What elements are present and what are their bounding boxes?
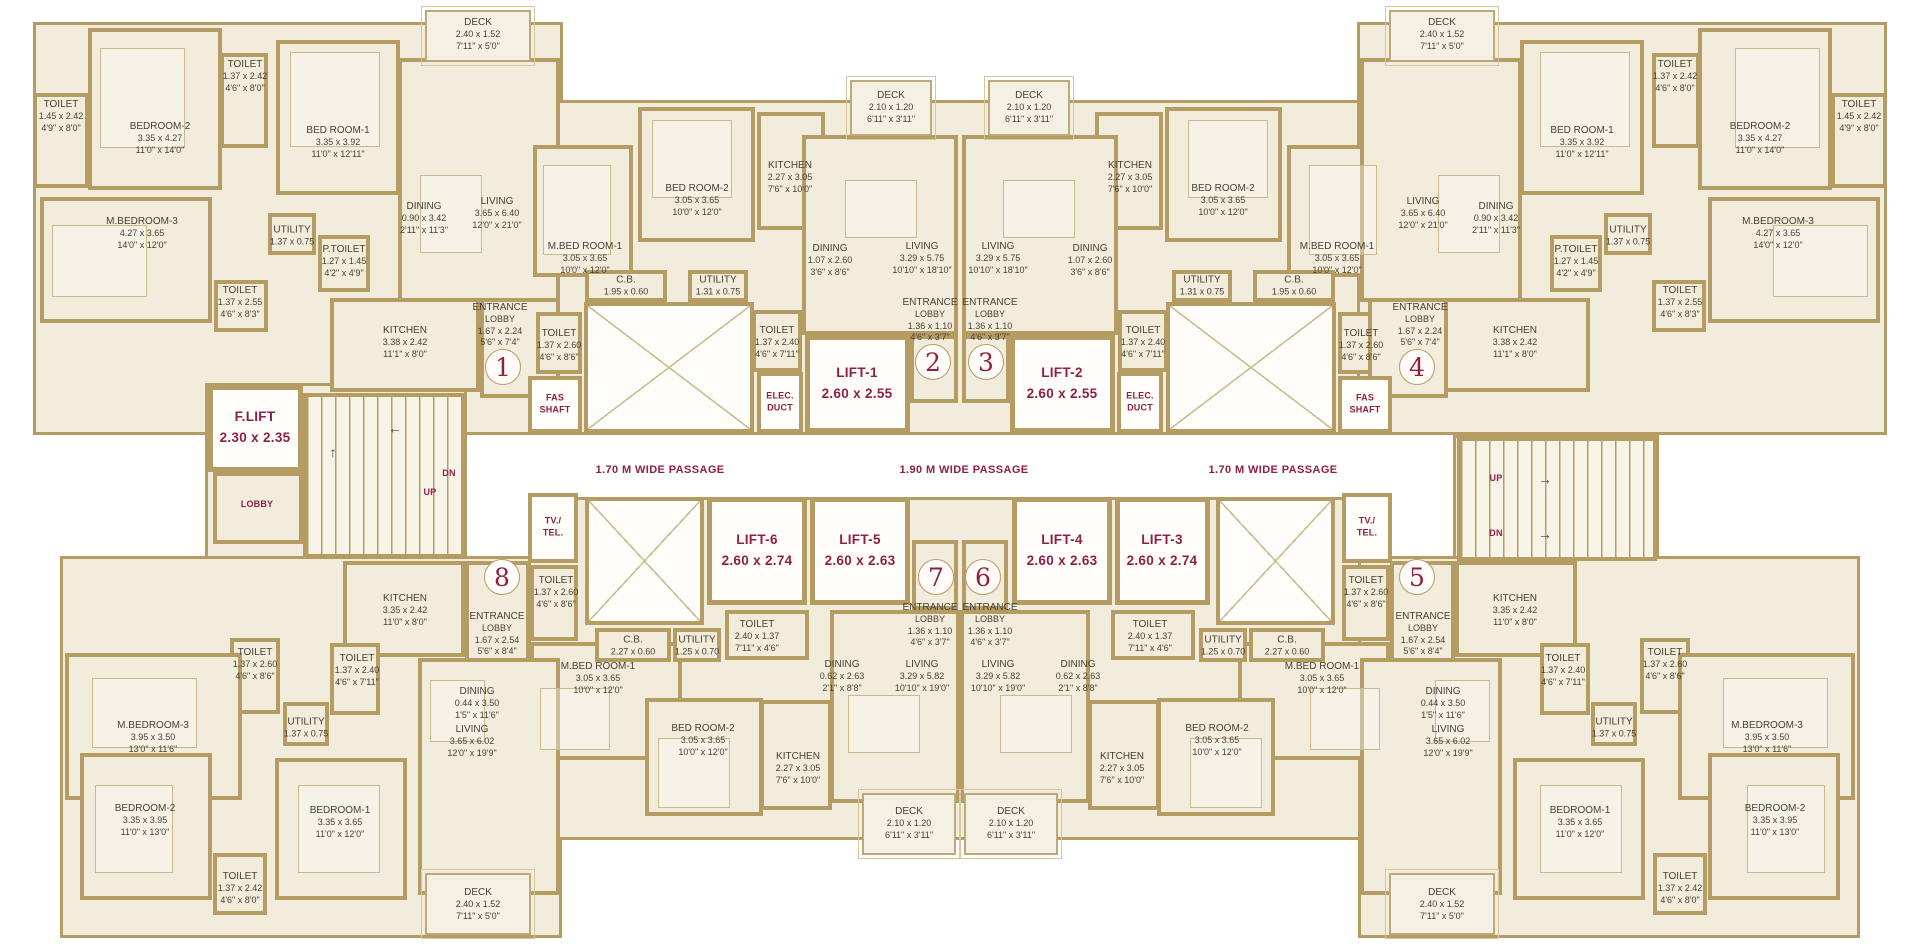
- u4-entrance-lobby-label-line-0: ENTRANCE: [1392, 301, 1447, 314]
- u1-toilet-bottom-label-line-0: TOILET: [218, 284, 263, 297]
- u2-deck-label-line-0: DECK: [867, 89, 915, 102]
- u4-toilet-mid-label-line-2: 4'6" x 8'0": [1653, 83, 1698, 95]
- u8-m-bedroom-3-label-line-1: 3.95 x 3.50: [117, 732, 189, 744]
- u1-living-label-line-1: 3.65 x 6.40: [472, 208, 521, 220]
- u7-dining-label-line-1: 0.62 x 2.63: [820, 671, 865, 683]
- u7-cb-label: C.B.2.27 x 0.60: [611, 634, 656, 659]
- fas-shaft-left-label-line-0: FAS: [540, 392, 571, 404]
- tv-tel-left-label-line-1: TEL.: [543, 527, 563, 539]
- u6-deck-label-line-1: 2.10 x 1.20: [987, 818, 1035, 830]
- u5-toilet-c-label: TOILET1.37 x 2.424'6" x 8'0": [1658, 870, 1703, 906]
- staircase-left: [303, 393, 465, 558]
- u3-living-label-line-1: 3.29 x 5.75: [968, 253, 1027, 265]
- u4-dining-label-line-2: 2'11" x 11'3": [1472, 225, 1520, 237]
- u7-kitchen-label-line-1: 2.27 x 3.05: [776, 763, 821, 775]
- elec-duct-left-label-line-0: ELEC.: [766, 390, 794, 402]
- u5-bedroom-1-label: BEDROOM-13.35 x 3.6511'0" x 12'0": [1550, 804, 1611, 840]
- lift-4-label-line-1: 2.60 x 2.63: [1027, 551, 1098, 572]
- u3-bed-room-2-label: BED ROOM-23.05 x 3.6510'0" x 12'0": [1191, 182, 1254, 218]
- u4-bed-room-1-label-line-1: 3.35 x 3.92: [1550, 137, 1613, 149]
- u5-toilet-c-label-line-2: 4'6" x 8'0": [1658, 895, 1703, 907]
- u7-deck-label-line-1: 2.10 x 1.20: [885, 818, 933, 830]
- u8-bedroom-1-label: BEDROOM-13.35 x 3.6511'0" x 12'0": [310, 804, 371, 840]
- u4-utility-label: UTILITY1.37 x 0.75: [1606, 224, 1651, 249]
- tv-tel-left-label-line-0: TV./: [543, 515, 563, 527]
- lift-2-label-line-1: 2.60 x 2.55: [1027, 384, 1098, 405]
- u2-deck-label: DECK2.10 x 1.206'11" x 3'11": [867, 89, 915, 125]
- u8-toilet-c-label: TOILET1.37 x 2.424'6" x 8'0": [218, 870, 263, 906]
- u7-bed-room-2-label: BED ROOM-23.05 x 3.6510'0" x 12'0": [671, 722, 734, 758]
- u6-toilet-mid-label-line-1: 2.40 x 1.37: [1128, 631, 1173, 643]
- u4-kitchen-label-line-2: 11'1" x 8'0": [1493, 349, 1538, 361]
- u4-p-toilet-label-line-0: P.TOILET: [1554, 243, 1599, 256]
- lift-6-label: LIFT-62.60 x 2.74: [722, 530, 793, 572]
- u6-cb-label-line-0: C.B.: [1265, 634, 1310, 647]
- u2-bed-room-2-label-line-0: BED ROOM-2: [665, 182, 728, 195]
- u5-bedroom-1-label-line-0: BEDROOM-1: [1550, 804, 1611, 817]
- fas-shaft-left-label: FASSHAFT: [540, 392, 571, 415]
- u3-deck-label-line-2: 6'11" x 3'11": [1005, 114, 1053, 126]
- u2-bed-room-2-label: BED ROOM-23.05 x 3.6510'0" x 12'0": [665, 182, 728, 218]
- u3-living-label: LIVING3.29 x 5.7510'10" x 18'10": [968, 240, 1027, 276]
- u4-dining-label-line-0: DINING: [1472, 200, 1520, 213]
- u6-toilet-mid-label: TOILET2.40 x 1.377'11" x 4'6": [1128, 618, 1173, 654]
- u5-bedroom-2-label-line-2: 11'0" x 13'0": [1745, 827, 1806, 839]
- u7-toilet-left-label: TOILET1.37 x 2.604'6" x 8'6": [534, 574, 579, 610]
- u4-m-bedroom-3-label-line-1: 4.27 x 3.65: [1742, 228, 1814, 240]
- u1-dining-label: DINING0.90 x 3.422'11" x 11'3": [400, 200, 448, 236]
- stair-left-arrow-dn: ←: [388, 419, 402, 437]
- u8-toilet-c-label-line-0: TOILET: [218, 870, 263, 883]
- u8-kitchen-label-line-0: KITCHEN: [383, 592, 428, 605]
- u5-bedroom-1-label-line-1: 3.35 x 3.65: [1550, 817, 1611, 829]
- dining-table: [1000, 695, 1072, 753]
- unit-number-4: 4: [1399, 349, 1435, 385]
- u2-toilet-right-label-line-0: TOILET: [755, 324, 800, 337]
- u4-toilet-right-label-line-2: 4'9" x 8'0": [1837, 123, 1882, 135]
- u1-bed-room-1-label-line-1: 3.35 x 3.92: [306, 137, 369, 149]
- u7-dining-label-line-2: 2'1" x 8'8": [820, 683, 865, 695]
- u2-cb-label-line-0: C.B.: [604, 274, 649, 287]
- u4-entrance-lobby-label-line-3: 5'6" x 7'4": [1392, 337, 1447, 349]
- u6-m-bed-room-1-label-line-1: 3.05 x 3.65: [1285, 673, 1359, 685]
- stair-right-up-label: UP: [1490, 473, 1503, 485]
- u2-entrance-lobby-label-line-1: LOBBY: [902, 309, 957, 321]
- u5-entrance-lobby-label-line-3: 5'6" x 8'4": [1395, 646, 1450, 658]
- u2-toilet-left-label-line-0: TOILET: [537, 327, 582, 340]
- staircase-right: [1457, 437, 1657, 561]
- u6-cb-label: C.B.2.27 x 0.60: [1265, 634, 1310, 659]
- u3-deck-label-line-1: 2.10 x 1.20: [1005, 102, 1053, 114]
- u1-bed-room-1-label: BED ROOM-13.35 x 3.9211'0" x 12'11": [306, 124, 369, 160]
- lift-5-label-line-1: 2.60 x 2.63: [825, 551, 896, 572]
- u7-m-bed-room-1-label: M.BED ROOM-13.05 x 3.6510'0" x 12'0": [561, 660, 635, 696]
- bed: [540, 688, 610, 750]
- u6-deck-label-line-0: DECK: [987, 805, 1035, 818]
- lift-6-label-line-1: 2.60 x 2.74: [722, 551, 793, 572]
- u1-toilet-left-label: TOILET1.45 x 2.424'9" x 8'0": [39, 98, 84, 134]
- u3-bed-room-2-label-line-0: BED ROOM-2: [1191, 182, 1254, 195]
- u6-entrance-lobby-label-line-3: 4'6" x 3'7": [962, 637, 1017, 649]
- u4-bed-room-1-label-line-2: 11'0" x 12'11": [1550, 149, 1613, 161]
- bed: [1310, 688, 1380, 750]
- u3-m-bed-room-1-label-line-1: 3.05 x 3.65: [1300, 253, 1374, 265]
- fire-lift-label: F.LIFT2.30 x 2.35: [220, 407, 291, 449]
- unit-number-3: 3: [968, 344, 1004, 380]
- u6-utility-label: UTILITY1.25 x 0.70: [1201, 634, 1246, 659]
- u2-bed-room-2-label-line-2: 10'0" x 12'0": [665, 207, 728, 219]
- u3-dining-label-line-0: DINING: [1068, 242, 1113, 255]
- u4-toilet-mid-label: TOILET1.37 x 2.424'6" x 8'0": [1653, 58, 1698, 94]
- passage-left-label: 1.70 M WIDE PASSAGE: [595, 463, 724, 477]
- u8-entrance-lobby-label-line-1: LOBBY: [469, 623, 524, 635]
- u4-bedroom-2-label: BEDROOM-23.35 x 4.2711'0" x 14'0": [1730, 120, 1791, 156]
- floor-plan: BEDROOM-23.35 x 4.2711'0" x 14'0"TOILET1…: [0, 0, 1920, 947]
- u8-utility-label-line-1: 1.37 x 0.75: [284, 729, 329, 741]
- u2-deck-label-line-2: 6'11" x 3'11": [867, 114, 915, 126]
- u1-living-label: LIVING3.65 x 6.4012'0" x 21'0": [472, 195, 521, 231]
- u7-bed-room-2-label-line-2: 10'0" x 12'0": [671, 747, 734, 759]
- u4-bedroom-2-label-line-0: BEDROOM-2: [1730, 120, 1791, 133]
- u5-toilet-b-label-line-2: 4'6" x 7'11": [1541, 677, 1586, 689]
- stair-right-up-label-line-0: UP: [1490, 473, 1503, 485]
- stair-right-arrow-dn-line-0: →: [1538, 525, 1552, 543]
- u4-toilet-mid-label-line-0: TOILET: [1653, 58, 1698, 71]
- u4-p-toilet-label-line-1: 1.27 x 1.45: [1554, 256, 1599, 268]
- u1-p-toilet-label-line-2: 4'2" x 4'9": [322, 268, 367, 280]
- u7-cb-label-line-0: C.B.: [611, 634, 656, 647]
- stair-right-dn-label: DN: [1489, 528, 1502, 540]
- u6-dining-label-line-1: 0.62 x 2.63: [1056, 671, 1101, 683]
- u1-toilet-left-label-line-2: 4'9" x 8'0": [39, 123, 84, 135]
- u3-kitchen-label-line-1: 2.27 x 3.05: [1108, 172, 1153, 184]
- u7-utility-label: UTILITY1.25 x 0.70: [675, 634, 720, 659]
- u3-kitchen-label-line-0: KITCHEN: [1108, 159, 1153, 172]
- lift-3-label-line-0: LIFT-3: [1127, 530, 1198, 551]
- u3-bed-room-2-label-line-1: 3.05 x 3.65: [1191, 195, 1254, 207]
- u5-bedroom-2-label-line-0: BEDROOM-2: [1745, 802, 1806, 815]
- stair-right-arrow-dn: →: [1538, 525, 1552, 543]
- u8-toilet-c-label-line-1: 1.37 x 2.42: [218, 883, 263, 895]
- u4-kitchen-label-line-1: 3.38 x 2.42: [1493, 337, 1538, 349]
- u8-bedroom-1-label-line-1: 3.35 x 3.65: [310, 817, 371, 829]
- tv-tel-right-label-line-0: TV./: [1357, 515, 1377, 527]
- u1-m-bedroom-3-label-line-0: M.BEDROOM-3: [106, 215, 178, 228]
- u7-utility-label-line-1: 1.25 x 0.70: [675, 647, 720, 659]
- u1-m-bedroom-3-label: M.BEDROOM-34.27 x 3.6514'0" x 12'0": [106, 215, 178, 251]
- lift-3-label: LIFT-32.60 x 2.74: [1127, 530, 1198, 572]
- u8-dining-label-line-1: 0.44 x 3.50: [455, 698, 500, 710]
- u7-deck-label-line-2: 6'11" x 3'11": [885, 830, 933, 842]
- u7-m-bed-room-1-label-line-0: M.BED ROOM-1: [561, 660, 635, 673]
- u1-bedroom-2-label: BEDROOM-23.35 x 4.2711'0" x 14'0": [130, 120, 191, 156]
- u1-entrance-lobby-label-line-0: ENTRANCE: [472, 301, 527, 314]
- stair-right-dn-label-line-0: DN: [1489, 528, 1502, 540]
- u7-living-label-line-0: LIVING: [895, 658, 949, 671]
- u6-bed-room-2-label-line-2: 10'0" x 12'0": [1185, 747, 1248, 759]
- u2-kitchen-label-line-1: 2.27 x 3.05: [768, 172, 813, 184]
- u8-bedroom-2-label-line-1: 3.35 x 3.95: [115, 815, 176, 827]
- u1-living-label-line-2: 12'0" x 21'0": [472, 220, 521, 232]
- u8-dining-label-line-2: 1'5" x 11'6": [455, 710, 500, 722]
- u4-dining-label-line-1: 0.90 x 3.42: [1472, 213, 1520, 225]
- u7-utility-label-line-0: UTILITY: [675, 634, 720, 647]
- u6-kitchen-label-line-0: KITCHEN: [1100, 750, 1145, 763]
- stair-left-up-label: UP: [424, 487, 437, 499]
- u2-deck-label-line-1: 2.10 x 1.20: [867, 102, 915, 114]
- u7-kitchen-label-line-0: KITCHEN: [776, 750, 821, 763]
- dining-table: [1003, 180, 1075, 238]
- u6-toilet-right-label: TOILET1.37 x 2.604'6" x 8'6": [1344, 574, 1389, 610]
- u8-bedroom-2-label: BEDROOM-23.35 x 3.9511'0" x 13'0": [115, 802, 176, 838]
- u1-deck-label: DECK2.40 x 1.527'11" x 5'0": [456, 16, 501, 52]
- u6-living-label: LIVING3.29 x 5.8210'10" x 19'0": [971, 658, 1025, 694]
- u8-toilet-a-label-line-1: 1.37 x 2.60: [233, 659, 278, 671]
- u5-m-bedroom-3-label-line-0: M.BEDROOM-3: [1731, 719, 1803, 732]
- u4-toilet-bottom-label: TOILET1.37 x 2.554'6" x 8'3": [1658, 284, 1703, 320]
- u8-entrance-lobby-label-line-2: 1.67 x 2.54: [469, 635, 524, 647]
- u2-cb-label: C.B.1.95 x 0.60: [604, 274, 649, 299]
- u8-toilet-b-label-line-0: TOILET: [335, 652, 380, 665]
- u8-toilet-a-label: TOILET1.37 x 2.604'6" x 8'6": [233, 646, 278, 682]
- u2-entrance-lobby-label-line-3: 4'6" x 3'7": [902, 332, 957, 344]
- u4-living-label-line-1: 3.65 x 6.40: [1398, 208, 1447, 220]
- u8-entrance-lobby-label: ENTRANCELOBBY1.67 x 2.545'6" x 8'4": [469, 610, 524, 658]
- u1-dining-label-line-1: 0.90 x 3.42: [400, 213, 448, 225]
- stair-right-arrow-up-line-0: →: [1538, 470, 1552, 488]
- u4-deck-label: DECK2.40 x 1.527'11" x 5'0": [1420, 16, 1465, 52]
- u2-toilet-left-label-line-1: 1.37 x 2.60: [537, 340, 582, 352]
- stair-left-dn-label-line-0: DN: [442, 468, 455, 480]
- u4-m-bedroom-3-label: M.BEDROOM-34.27 x 3.6514'0" x 12'0": [1742, 215, 1814, 251]
- u1-m-bedroom-3-label-line-2: 14'0" x 12'0": [106, 240, 178, 252]
- u8-living-label-line-1: 3.65 x 6.02: [447, 736, 496, 748]
- u8-bedroom-1-label-line-0: BEDROOM-1: [310, 804, 371, 817]
- u3-utility-label-line-1: 1.31 x 0.75: [1180, 287, 1225, 299]
- u8-m-bedroom-3-label-line-2: 13'0" x 11'6": [117, 744, 189, 756]
- u1-toilet-mid-label-line-0: TOILET: [223, 58, 268, 71]
- u1-bed-room-1-label-line-0: BED ROOM-1: [306, 124, 369, 137]
- u2-toilet-left-label: TOILET1.37 x 2.604'6" x 8'6": [537, 327, 582, 363]
- u2-kitchen-label-line-0: KITCHEN: [768, 159, 813, 172]
- u8-entrance-lobby-label-line-3: 5'6" x 8'4": [469, 646, 524, 658]
- u6-toilet-right-label-line-0: TOILET: [1344, 574, 1389, 587]
- u4-toilet-right-label-line-1: 1.45 x 2.42: [1837, 111, 1882, 123]
- u6-entrance-lobby-label-line-1: LOBBY: [962, 614, 1017, 626]
- u7-bed-room-2-label-line-1: 3.05 x 3.65: [671, 735, 734, 747]
- u3-entrance-lobby-label-line-0: ENTRANCE: [962, 296, 1017, 309]
- u8-living-label: LIVING3.65 x 6.0212'0" x 19'9": [447, 723, 496, 759]
- u6-toilet-mid-label-line-2: 7'11" x 4'6": [1128, 643, 1173, 655]
- u7-deck-label-line-0: DECK: [885, 805, 933, 818]
- u7-living-label-line-1: 3.29 x 5.82: [895, 671, 949, 683]
- u6-toilet-mid-label-line-0: TOILET: [1128, 618, 1173, 631]
- u4-bed-room-1-label: BED ROOM-13.35 x 3.9211'0" x 12'11": [1550, 124, 1613, 160]
- u4-entrance-lobby-label: ENTRANCELOBBY1.67 x 2.245'6" x 7'4": [1392, 301, 1447, 349]
- u1-kitchen-label-line-1: 3.38 x 2.42: [383, 337, 428, 349]
- u1-deck-label-line-0: DECK: [456, 16, 501, 29]
- lift-2-label-line-0: LIFT-2: [1027, 363, 1098, 384]
- u7-toilet-mid-label-line-1: 2.40 x 1.37: [735, 631, 780, 643]
- u2-cb-label-line-1: 1.95 x 0.60: [604, 287, 649, 299]
- u1-toilet-left-label-line-1: 1.45 x 2.42: [39, 111, 84, 123]
- u7-dining-label-line-0: DINING: [820, 658, 865, 671]
- u1-living-label-line-0: LIVING: [472, 195, 521, 208]
- u4-utility-label-line-1: 1.37 x 0.75: [1606, 237, 1651, 249]
- u2-m-bed-room-1-label-line-1: 3.05 x 3.65: [548, 253, 622, 265]
- u8-toilet-b-label-line-1: 1.37 x 2.40: [335, 665, 380, 677]
- u8-m-bedroom-3-label-line-0: M.BEDROOM-3: [117, 719, 189, 732]
- u1-toilet-bottom-label-line-1: 1.37 x 2.55: [218, 297, 263, 309]
- u1-entrance-lobby-label: ENTRANCELOBBY1.67 x 2.245'6" x 7'4": [472, 301, 527, 349]
- u6-living-label-line-0: LIVING: [971, 658, 1025, 671]
- u5-toilet-b-label-line-1: 1.37 x 2.40: [1541, 665, 1586, 677]
- u1-dining-label-line-0: DINING: [400, 200, 448, 213]
- u3-m-bed-room-1-label: M.BED ROOM-13.05 x 3.6510'0" x 12'0": [1300, 240, 1374, 276]
- u3-toilet-right-label-line-0: TOILET: [1339, 327, 1384, 340]
- u7-entrance-lobby-label-line-1: LOBBY: [902, 614, 957, 626]
- stair-left-arrow-up-line-0: ↑: [330, 443, 337, 461]
- u7-bed-room-2-label-line-0: BED ROOM-2: [671, 722, 734, 735]
- u3-toilet-left-label: TOILET1.37 x 2.404'6" x 7'11": [1121, 324, 1166, 360]
- u1-p-toilet-label-line-1: 1.27 x 1.45: [322, 256, 367, 268]
- u7-deck-label: DECK2.10 x 1.206'11" x 3'11": [885, 805, 933, 841]
- void-top-left: [584, 302, 754, 433]
- u6-living-label-line-2: 10'10" x 19'0": [971, 683, 1025, 695]
- u8-kitchen-label: KITCHEN3.35 x 2.4211'0" x 8'0": [383, 592, 428, 628]
- u2-toilet-right-label-line-1: 1.37 x 2.40: [755, 337, 800, 349]
- u6-m-bed-room-1-label: M.BED ROOM-13.05 x 3.6510'0" x 12'0": [1285, 660, 1359, 696]
- u4-dining-label: DINING0.90 x 3.422'11" x 11'3": [1472, 200, 1520, 236]
- u6-m-bed-room-1-label-line-2: 10'0" x 12'0": [1285, 685, 1359, 697]
- u3-dining-label: DINING1.07 x 2.603'6" x 8'6": [1068, 242, 1113, 278]
- fas-shaft-right-label: FASSHAFT: [1350, 392, 1381, 415]
- u1-kitchen-label: KITCHEN3.38 x 2.4211'1" x 8'0": [383, 324, 428, 360]
- tv-tel-right-label: TV./TEL.: [1357, 515, 1377, 538]
- unit-number-1: 1: [485, 349, 521, 385]
- void-bottom-right: [1216, 497, 1335, 625]
- u1-bedroom-2-label-line-0: BEDROOM-2: [130, 120, 191, 133]
- u1-utility-label-line-0: UTILITY: [270, 224, 315, 237]
- u5-toilet-b-label-line-0: TOILET: [1541, 652, 1586, 665]
- u6-kitchen-label-line-1: 2.27 x 3.05: [1100, 763, 1145, 775]
- u4-toilet-bottom-label-line-2: 4'6" x 8'3": [1658, 309, 1703, 321]
- u6-entrance-lobby-label-line-2: 1.36 x 1.10: [962, 626, 1017, 638]
- u2-toilet-right-label: TOILET1.37 x 2.404'6" x 7'11": [755, 324, 800, 360]
- void-top-right: [1166, 302, 1336, 433]
- left-core-lobby-label-line-0: LOBBY: [241, 499, 274, 511]
- u5-toilet-a-label-line-0: TOILET: [1643, 646, 1688, 659]
- u3-dining-label-line-1: 1.07 x 2.60: [1068, 255, 1113, 267]
- u5-living-label-line-2: 12'0" x 19'9": [1423, 748, 1472, 760]
- elec-duct-right-label: ELEC.DUCT: [1126, 390, 1154, 413]
- u3-bed-room-2-label-line-2: 10'0" x 12'0": [1191, 207, 1254, 219]
- u4-entrance-lobby-label-line-1: LOBBY: [1392, 314, 1447, 326]
- u1-kitchen-label-line-2: 11'1" x 8'0": [383, 349, 428, 361]
- u2-living-label-line-1: 3.29 x 5.75: [892, 253, 951, 265]
- u5-deck-label: DECK2.40 x 1.527'11" x 5'0": [1420, 886, 1465, 922]
- u5-entrance-lobby-label-line-1: LOBBY: [1395, 623, 1450, 635]
- u6-m-bed-room-1-label-line-0: M.BED ROOM-1: [1285, 660, 1359, 673]
- lift-5-label: LIFT-52.60 x 2.63: [825, 530, 896, 572]
- u5-entrance-lobby-label-line-0: ENTRANCE: [1395, 610, 1450, 623]
- u7-toilet-mid-label-line-2: 7'11" x 4'6": [735, 643, 780, 655]
- u2-kitchen-label: KITCHEN2.27 x 3.057'6" x 10'0": [768, 159, 813, 195]
- u5-m-bedroom-3-label-line-2: 13'0" x 11'6": [1731, 744, 1803, 756]
- lift-1-label: LIFT-12.60 x 2.55: [822, 363, 893, 405]
- u6-living-label-line-1: 3.29 x 5.82: [971, 671, 1025, 683]
- u7-m-bed-room-1-label-line-1: 3.05 x 3.65: [561, 673, 635, 685]
- u8-toilet-a-label-line-2: 4'6" x 8'6": [233, 671, 278, 683]
- passage-center-label: 1.90 M WIDE PASSAGE: [899, 463, 1028, 477]
- u5-living-label: LIVING3.65 x 6.0212'0" x 19'9": [1423, 723, 1472, 759]
- left-core-lobby-label: LOBBY: [241, 499, 274, 511]
- u5-utility-label: UTILITY1.37 x 0.75: [1592, 716, 1637, 741]
- u5-dining-label-line-0: DINING: [1421, 685, 1466, 698]
- u2-dining-label-line-2: 3'6" x 8'6": [808, 267, 853, 279]
- u8-toilet-b-label-line-2: 4'6" x 7'11": [335, 677, 380, 689]
- u6-entrance-lobby-label: ENTRANCELOBBY1.36 x 1.104'6" x 3'7": [962, 601, 1017, 649]
- stair-left-up-label-line-0: UP: [424, 487, 437, 499]
- u3-toilet-left-label-line-2: 4'6" x 7'11": [1121, 349, 1166, 361]
- passage-center-label-line-0: 1.90 M WIDE PASSAGE: [899, 463, 1028, 477]
- u3-cb-label-line-0: C.B.: [1272, 274, 1317, 287]
- u7-kitchen-label: KITCHEN2.27 x 3.057'6" x 10'0": [776, 750, 821, 786]
- u1-utility-label: UTILITY1.37 x 0.75: [270, 224, 315, 249]
- u5-toilet-a-label: TOILET1.37 x 2.604'6" x 8'6": [1643, 646, 1688, 682]
- u1-entrance-lobby-label-line-3: 5'6" x 7'4": [472, 337, 527, 349]
- u2-toilet-left-label-line-2: 4'6" x 8'6": [537, 352, 582, 364]
- u6-toilet-right-label-line-1: 1.37 x 2.60: [1344, 587, 1389, 599]
- u7-dining-label: DINING0.62 x 2.632'1" x 8'8": [820, 658, 865, 694]
- stair-left-dn-label: DN: [442, 468, 455, 480]
- unit-number-6: 6: [965, 559, 1001, 595]
- u2-entrance-lobby-label: ENTRANCELOBBY1.36 x 1.104'6" x 3'7": [902, 296, 957, 344]
- u2-m-bed-room-1-label-line-0: M.BED ROOM-1: [548, 240, 622, 253]
- stair-left-arrow-up: ↑: [330, 443, 337, 461]
- passage-right-label-line-0: 1.70 M WIDE PASSAGE: [1208, 463, 1337, 477]
- elec-duct-left-label-line-1: DUCT: [766, 402, 794, 414]
- u5-bedroom-1-label-line-2: 11'0" x 12'0": [1550, 829, 1611, 841]
- u3-dining-label-line-2: 3'6" x 8'6": [1068, 267, 1113, 279]
- u3-m-bed-room-1-label-line-0: M.BED ROOM-1: [1300, 240, 1374, 253]
- u1-m-bedroom-3-label-line-1: 4.27 x 3.65: [106, 228, 178, 240]
- u7-toilet-mid-label-line-0: TOILET: [735, 618, 780, 631]
- u4-bedroom-2-label-line-2: 11'0" x 14'0": [1730, 145, 1791, 157]
- u8-dining-label-line-0: DINING: [455, 685, 500, 698]
- u5-m-bedroom-3-label-line-1: 3.95 x 3.50: [1731, 732, 1803, 744]
- u7-entrance-lobby-label-line-3: 4'6" x 3'7": [902, 637, 957, 649]
- tv-tel-right-label-line-1: TEL.: [1357, 527, 1377, 539]
- u6-bed-room-2-label-line-1: 3.05 x 3.65: [1185, 735, 1248, 747]
- unit-number-2: 2: [915, 344, 951, 380]
- u5-m-bedroom-3-label: M.BEDROOM-33.95 x 3.5013'0" x 11'6": [1731, 719, 1803, 755]
- u8-utility-label-line-0: UTILITY: [284, 716, 329, 729]
- u3-deck-label-line-0: DECK: [1005, 89, 1053, 102]
- u4-toilet-bottom-label-line-0: TOILET: [1658, 284, 1703, 297]
- u8-bedroom-2-label-line-2: 11'0" x 13'0": [115, 827, 176, 839]
- u7-cb-label-line-1: 2.27 x 0.60: [611, 647, 656, 659]
- u5-utility-label-line-0: UTILITY: [1592, 716, 1637, 729]
- u4-deck-label-line-2: 7'11" x 5'0": [1420, 41, 1465, 53]
- u7-entrance-lobby-label: ENTRANCELOBBY1.36 x 1.104'6" x 3'7": [902, 601, 957, 649]
- u1-toilet-mid-label-line-2: 4'6" x 8'0": [223, 83, 268, 95]
- u8-dining-label: DINING0.44 x 3.501'5" x 11'6": [455, 685, 500, 721]
- u8-deck-label: DECK2.40 x 1.527'11" x 5'0": [456, 886, 501, 922]
- u1-toilet-bottom-label-line-2: 4'6" x 8'3": [218, 309, 263, 321]
- u8-deck-label-line-1: 2.40 x 1.52: [456, 899, 501, 911]
- lift-4-label: LIFT-42.60 x 2.63: [1027, 530, 1098, 572]
